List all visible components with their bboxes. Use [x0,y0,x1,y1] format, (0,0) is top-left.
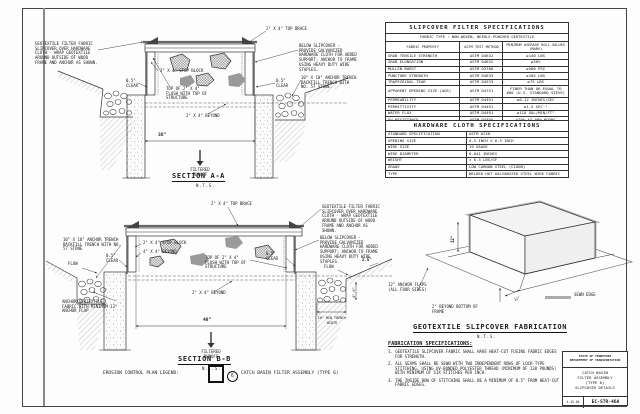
label-sewn-edge: SEWN EDGE [574,293,596,298]
spec-property: WATER FLUX [386,110,460,117]
note-clear-left-a: 0.5" CLEAR [126,79,146,88]
legend-label: EROSION CONTROL PLAN LEGEND: [103,372,179,377]
spec-method: ASTM D4491 [460,110,503,117]
spec-property: WIRE SIZE [386,144,467,151]
table-row: WATER FLUXASTM D4491≥110 GAL/MIN/FT² [386,110,569,117]
section-b-title: SECTION B-B [178,355,231,365]
note-beyond-a: 2" X 4" BEYOND [186,114,220,119]
label-anchor-flaps: 12" ANCHOR FLAPS (ALL FOUR SIDES) [388,283,432,292]
legend-description: CATCH BASIN FILTER ASSEMBLY (TYPE 6) [241,372,339,377]
spec-property: PERMITTIVITY [386,104,460,111]
slipcover-filter-spec-table: SLIPCOVER FILTER SPECIFICATIONS FABRIC T… [385,22,569,131]
note-below-slipcover-a: BELOW SLIPCOVER - PROVIDE GALVANIZED HAR… [299,44,359,72]
note-top-brace-a: 2" X 4" TOP BRACE [266,27,307,32]
spec-value: FINER THAN OR EQUAL TO #80 (U.S. STANDAR… [503,86,569,97]
fabrication-note: 1. GEOTEXTILE SLIPCOVER FABRIC SHALL HAV… [388,350,562,359]
legend-filter-symbol [208,365,224,383]
table-row: PUNCTURE STRENGTHASTM D4833≥105 LBS [386,73,569,80]
table-row: GRAB ELONGATIONASTM D4632≥50% [386,59,569,66]
fabrication-title: GEOTEXTILE SLIPCOVER FABRICATION [413,323,567,333]
table-row: WEIGHT± 0.3 LBS/SF [386,157,569,164]
note-flush-a: TOP OF 2" X 4" FLUSH WITH TOP OF STRUCTU… [166,87,214,101]
note-clear-left-b: 0.5" CLEAR [106,254,126,263]
col-header-value: MINIMUM AVERAGE ROLL VALUES (MARV) [503,42,569,53]
legend-number-badge: 6 [227,371,238,382]
dim-4-6: 4"-6" [352,287,357,298]
spec-value: ≥110 GAL/MIN/FT² [503,110,569,117]
table-header-row: FABRIC PROPERTY ASTM TEST METHOD MINIMUM… [386,42,569,53]
fabrication-notes: 1. GEOTEXTILE SLIPCOVER FABRIC SHALL HAV… [388,350,562,390]
table-row: GRAB TENSILE STRENGTHASTM D4632≥140 LBS [386,53,569,60]
spec-property: PERMEABILITY [386,97,460,104]
title-block-drawing-title: CATCH BASIN FILTER ASSEMBLY (TYPE 6) SLI… [563,368,627,397]
table-row: PERMEABILITYASTM D4491≥0.12 INCHES/SEC [386,97,569,104]
spec-value: ≥0.12 INCHES/SEC [503,97,569,104]
hardware-cloth-spec-table: HARDWARE CLOTH SPECIFICATIONS STANDARD S… [385,120,569,178]
spec-value: ASTM A740 [467,131,569,138]
note-flush-b: TOP OF 2" X 4" FLUSH WITH TOP OF STRUCTU… [205,256,249,270]
table-title-row: SLIPCOVER FILTER SPECIFICATIONS [386,23,569,34]
col-header-method: ASTM TEST METHOD [460,42,503,53]
title-block: STATE OF TENNESSEE DEPARTMENT OF TRANSPO… [562,351,628,406]
filter-table-title: SLIPCOVER FILTER SPECIFICATIONS [386,23,569,34]
table-row: MULLEN BURSTASTM D3786≥500 PSI [386,66,569,73]
spec-property: WIRE DIAMETER [386,151,467,158]
agency-line-2: DEPARTMENT OF TRANSPORTATION [563,358,627,362]
label-beyond-bottom: 2" BEYOND BOTTOM OF FRAME [432,305,484,314]
spec-method: ASTM D4491 [460,104,503,111]
table-row: TYPEWELDED HOT GALVANIZED STEEL WIRE FAB… [386,171,569,178]
section-a-scale: N.T.S. [196,183,215,188]
table-row: PERMITTIVITYASTM D4491≥1.5 SEC⁻¹ [386,104,569,111]
title-block-agency: STATE OF TENNESSEE DEPARTMENT OF TRANSPO… [563,352,627,368]
sewn-edge-swatch [545,296,571,299]
note-slipcover-a: GEOTEXTILE FILTER FABRIC SLIPCOVER OVER … [35,42,98,66]
table-row: WIRE SIZE19 GAUGE [386,144,569,151]
note-stop-block-a: 2" X 4" STOP BLOCK [160,69,203,74]
spec-method: ASTM D4751 [460,86,503,97]
drawing-sheet: { "sheet": { "legend": { "label": "EROSI… [0,0,640,414]
table-row: STANDARD SPECIFICATIONASTM A740 [386,131,569,138]
spec-value: ≥140 LBS [503,53,569,60]
spec-value: LOW CARBON STEEL (C1008) [467,164,569,171]
hardware-table-title: HARDWARE CLOTH SPECIFICATIONS [386,121,569,132]
note-clear-right-b: 0.5" CLEAR [266,252,286,261]
note-anchor-trench-b: 10" X 10" ANCHOR TRENCH BACKFILL TRENCH … [63,238,121,252]
title-block-date: 4-15-04 [563,397,584,408]
spec-property: MULLEN BURST [386,66,460,73]
spec-value: ≥500 PSI [503,66,569,73]
spec-value: ≥75 LBS [503,79,569,86]
note-anchor-trench-a: 10" X 10" ANCHOR TRENCH BACKFILL TRENCH … [301,76,357,90]
iso-slipcover-linework [418,202,632,302]
dim-2-5: 2.5" [362,258,372,263]
table-subtitle-row: FABRIC TYPE : NON-WOVEN, NEEDLE-PUNCHED … [386,33,569,42]
spec-value: WELDED HOT GALVANIZED STEEL WIRE FABRIC [467,171,569,178]
dim-48: 48" [203,319,211,324]
spec-property: PUNCTURE STRENGTH [386,73,460,80]
spec-method: ASTM D4491 [460,97,503,104]
title-block-sheet-number: EC-STR-46A [584,397,627,408]
table-row: GRADELOW CARBON STEEL (C1008) [386,164,569,171]
spec-property: GRAB ELONGATION [386,59,460,66]
title-block-bottom-row: 4-15-04 EC-STR-46A [563,397,627,408]
spec-property: STANDARD SPECIFICATION [386,131,467,138]
spec-value: 19 GAUGE [467,144,569,151]
filter-table-subtitle: FABRIC TYPE : NON-WOVEN, NEEDLE-PUNCHED … [386,33,569,42]
spec-value: ≥1.5 SEC⁻¹ [503,104,569,111]
spec-value: 0.5 INCH X 0.5 INCH [467,138,569,145]
spec-value: ≥105 LBS [503,73,569,80]
table-row: TRAPEZOIDAL TEARASTM D4533≥75 LBS [386,79,569,86]
note-slipcover-b: GEOTEXTILE FILTER FABRIC SLIPCOVER OVER … [322,205,384,233]
fabrication-note: 3. THE INSIDE ROW OF STITCHING SHALL BE … [388,379,562,388]
spec-method: ASTM D4533 [460,79,503,86]
spec-property: TYPE [386,171,467,178]
spec-property: GRAB TENSILE STRENGTH [386,53,460,60]
dim-36: 36" [158,134,166,139]
note-beyond-4x4-b: 4" X 4" BEYOND [143,250,177,255]
note-top-brace-b: 2" X 4" TOP BRACE [211,202,252,207]
note-trench-width-b: 10" MIN TRENCH WIDTH [315,316,349,325]
note-anchor-flap-b: ANCHOR GEOTEXTILE FABRIC WITH MINIMUM 12… [62,300,118,314]
spec-value: 0.041 INCHES [467,151,569,158]
spec-method: ASTM D4632 [460,59,503,66]
note-stop-block-b: 2" X 4" STOP BLOCK [143,241,186,246]
spec-property: OPENING SIZE [386,138,467,145]
table-row: OPENING SIZE0.5 INCH X 0.5 INCH [386,138,569,145]
spec-value: ± 0.3 LBS/SF [467,157,569,164]
spec-method: ASTM D4632 [460,53,503,60]
note-clear-right-a: 0.5" CLEAR [276,79,296,88]
note-flow-right-b: FLOW [324,265,334,270]
spec-property: GRADE [386,164,467,171]
fabrication-scale: N.T.S. [477,334,496,339]
drawing-title-line-4: SLIPCOVER DETAILS [563,385,627,390]
spec-property: TRAPEZOIDAL TEAR [386,79,460,86]
spec-value: ≥50% [503,59,569,66]
spec-property: APPARENT OPENING SIZE (AOS) [386,86,460,97]
spec-property: WEIGHT [386,157,467,164]
table-title-row: HARDWARE CLOTH SPECIFICATIONS [386,121,569,132]
table-row: APPARENT OPENING SIZE (AOS)ASTM D4751FIN… [386,86,569,97]
spec-method: ASTM D3786 [460,66,503,73]
spec-method: ASTM D4833 [460,73,503,80]
col-header-property: FABRIC PROPERTY [386,42,460,53]
fabrication-spec-heading: FABRICATION SPECIFICATIONS: [388,341,472,347]
dim-height-12: 12" [451,236,456,243]
table-row: WIRE DIAMETER0.041 INCHES [386,151,569,158]
section-a-title: SECTION A-A [172,172,225,182]
note-beyond-b: 2" X 4" BEYOND [192,291,226,296]
note-flow-left-b: FLOW [68,262,78,267]
fabrication-note: 2. ALL SEAMS SHALL BE SEWN WITH TWO INDE… [388,362,562,376]
